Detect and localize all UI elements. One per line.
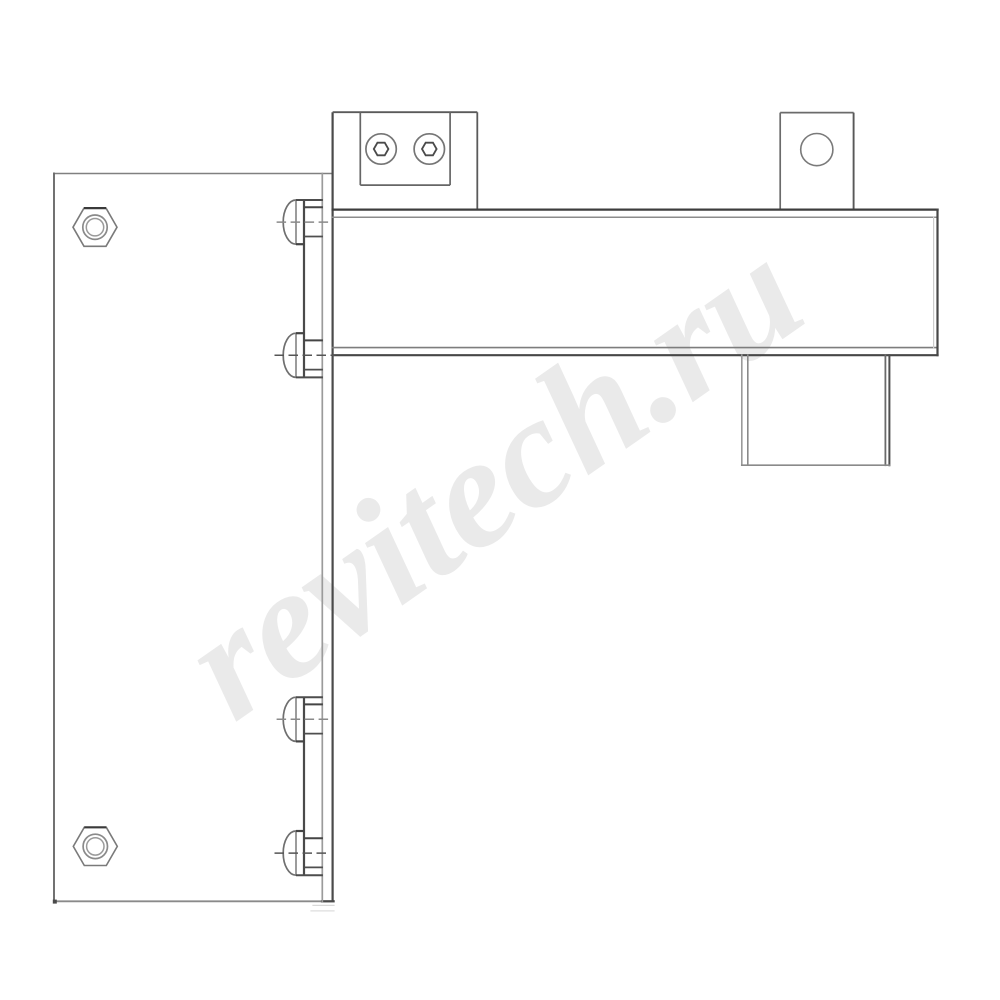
svg-text:revitech.ru: revitech.ru <box>153 204 832 753</box>
